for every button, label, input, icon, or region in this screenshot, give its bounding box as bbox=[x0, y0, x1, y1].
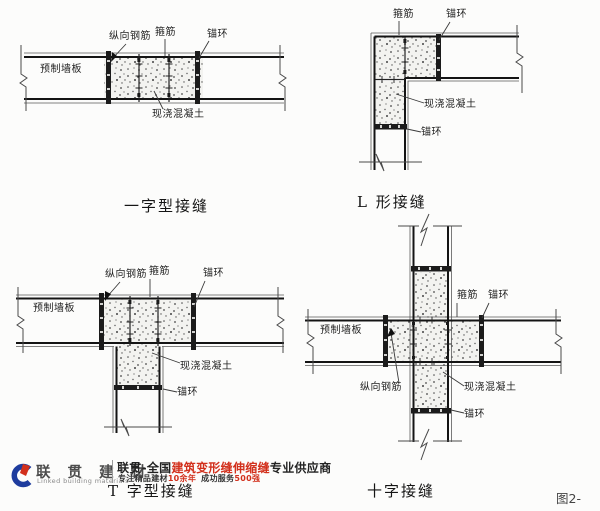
figure-number-label: 图2- bbox=[556, 488, 581, 507]
label-anchor-ring-top: 锚环 bbox=[488, 290, 509, 302]
label-precast-panel: 预制墙板 bbox=[33, 303, 75, 315]
brand-slogan-line2: 专注精品建材10余年成功服务500强 bbox=[118, 473, 260, 484]
L-joint-linework bbox=[359, 21, 523, 171]
caption-L-joint: L 形接缝 bbox=[357, 191, 427, 212]
label-cast-in-place: 现浇混凝土 bbox=[464, 382, 517, 394]
label-longitudinal-rebar: 纵向钢筋 bbox=[105, 269, 147, 281]
label-anchor-ring: 锚环 bbox=[207, 29, 228, 41]
brand-name-en: Linked building materials bbox=[37, 477, 129, 485]
label-precast-panel: 预制墙板 bbox=[40, 64, 82, 76]
label-anchor-ring-bottom: 锚环 bbox=[464, 409, 485, 421]
slogan1-suffix: 专业供应商 bbox=[270, 461, 332, 475]
label-anchor-ring-top: 锚环 bbox=[203, 268, 224, 280]
label-precast-panel: 预制墙板 bbox=[320, 325, 362, 337]
label-anchor-ring-bottom: 锚环 bbox=[177, 387, 198, 399]
label-cast-in-place: 现浇混凝土 bbox=[424, 99, 477, 111]
label-cast-in-place: 现浇混凝土 bbox=[152, 109, 205, 121]
cross-joint-linework bbox=[305, 214, 562, 460]
label-cast-in-place: 现浇混凝土 bbox=[180, 361, 233, 373]
diagram-linework bbox=[0, 0, 600, 511]
caption-straight-joint: 一字型接缝 bbox=[124, 195, 209, 216]
caption-cross-joint: 十字接缝 bbox=[367, 480, 435, 501]
slogan2-red1: 10余年 bbox=[168, 474, 196, 483]
label-stirrup: 箍筋 bbox=[457, 290, 478, 302]
watermark-divider bbox=[112, 460, 113, 483]
label-stirrup: 箍筋 bbox=[393, 9, 414, 21]
brand-logo-icon bbox=[10, 463, 34, 488]
slogan2-red2: 500强 bbox=[234, 474, 260, 483]
figure-canvas: 纵向钢筋 箍筋 锚环 预制墙板 现浇混凝土 一字型接缝 箍筋 锚环 现浇混凝土 … bbox=[0, 0, 600, 511]
label-stirrup: 箍筋 bbox=[155, 27, 176, 39]
label-longitudinal-rebar: 纵向钢筋 bbox=[360, 382, 402, 394]
label-anchor-ring-bottom: 锚环 bbox=[421, 127, 442, 139]
slogan2-seg2: 成功服务 bbox=[201, 474, 234, 483]
label-stirrup: 箍筋 bbox=[149, 266, 170, 278]
label-longitudinal-rebar: 纵向钢筋 bbox=[109, 31, 151, 43]
label-anchor-ring-top: 锚环 bbox=[446, 9, 467, 21]
slogan2-seg1: 专注精品建材 bbox=[118, 474, 168, 483]
